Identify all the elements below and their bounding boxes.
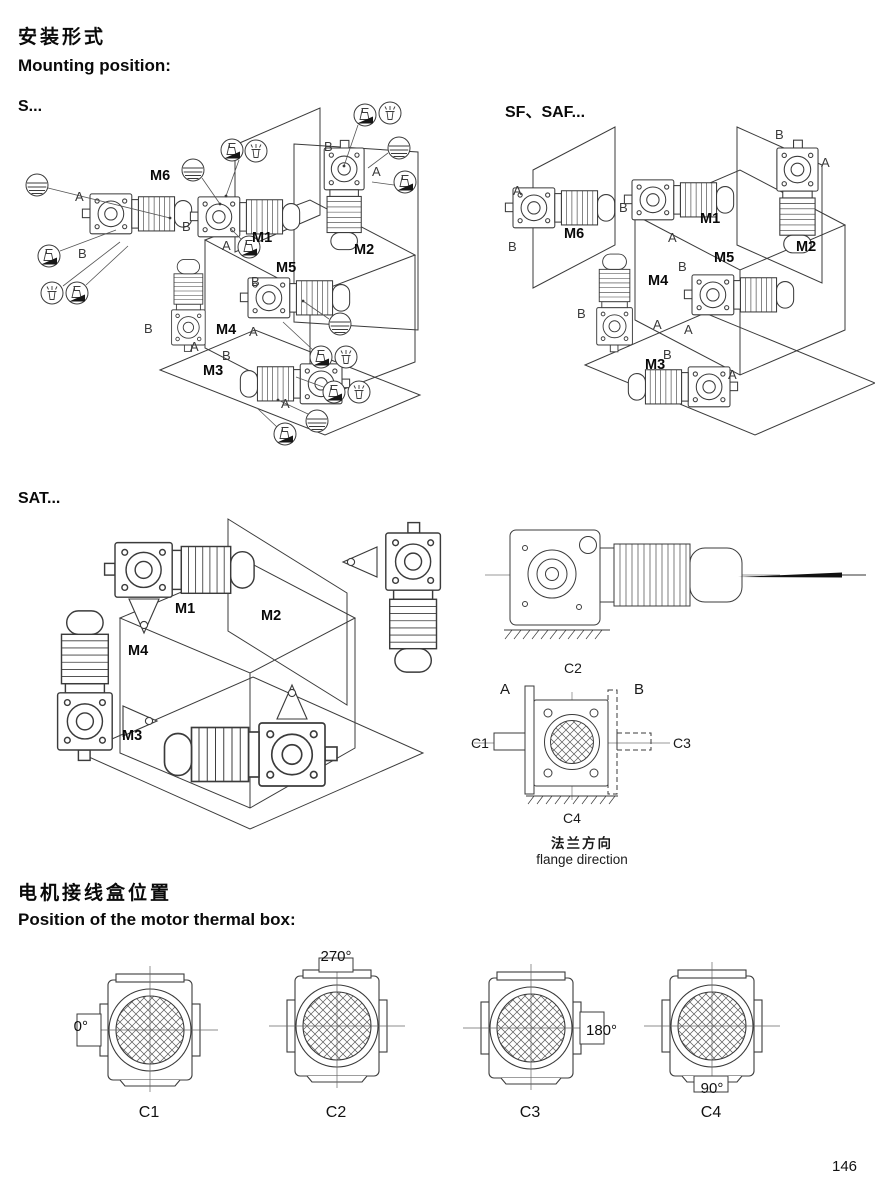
flange-b-label: B (634, 681, 644, 698)
oil-drain-icon (274, 423, 296, 445)
m3-label: M3 (122, 728, 142, 744)
m2-label: M2 (354, 242, 374, 258)
side-a-label: A (75, 189, 84, 204)
breather-icon (379, 102, 401, 124)
side-a-label: A (281, 396, 290, 411)
sf-saf-mounting-diagram: M6 M1 M2 M4 M5 M3 A B B A B A B A B A B … (480, 115, 875, 455)
side-a-label: A (728, 367, 737, 382)
side-b-label: B (251, 274, 260, 289)
angle-270: 270° (296, 948, 376, 965)
side-a-label: A (513, 183, 522, 198)
motor-front (82, 966, 218, 1092)
caption-c2: C2 (261, 1104, 411, 1122)
motor-front (644, 962, 780, 1088)
s-mounting-diagram: M6 M1 M2 M5 M4 M3 A B B A B A B A B A B … (20, 100, 460, 472)
m4-label: M4 (128, 643, 148, 659)
flange-a-label: A (500, 681, 510, 698)
m6-label: M6 (564, 226, 584, 242)
motor-front-view-c1 (74, 960, 224, 1098)
angle-0: 0° (52, 1018, 88, 1035)
m1-label: M1 (175, 601, 195, 617)
oil-drain-icon (38, 245, 60, 267)
gearmotor-m6 (505, 188, 614, 228)
gear-unit-housing (510, 530, 600, 625)
gearmotor-m2 (324, 140, 364, 249)
side-b-label: B (577, 306, 586, 321)
gearmotor-m1 (105, 543, 255, 598)
side-b-label: B (222, 348, 231, 363)
motor-front (269, 962, 405, 1088)
breather-icon (245, 140, 267, 162)
oil-level-icon (388, 137, 410, 159)
side-a-label: A (222, 238, 231, 253)
oil-level-icon (306, 410, 328, 432)
gearmotor-side-view (480, 512, 875, 642)
sat-mounting-diagram: M1 M2 M4 M3 (25, 505, 470, 820)
breather-icon (348, 381, 370, 403)
wall-plane (228, 519, 347, 705)
angle-90: 90° (672, 1080, 752, 1097)
side-a-label: A (249, 324, 258, 339)
side-b-label: B (508, 239, 517, 254)
flange-c4-label: C4 (563, 810, 581, 826)
page-number: 146 (832, 1158, 857, 1175)
side-a-label: A (190, 339, 199, 354)
flange-caption-en: flange direction (462, 852, 702, 867)
m2-label: M2 (261, 608, 281, 624)
side-b-label: B (78, 246, 87, 261)
flange-c2-label: C2 (564, 660, 582, 676)
alternate-flange-dashed (608, 690, 651, 794)
gearmotor-m4 (172, 259, 206, 351)
oil-drain-icon (221, 139, 243, 161)
gearmotor-m4 (597, 254, 633, 352)
thermal-box-title-en: Position of the motor thermal box: (18, 910, 296, 930)
oil-drain-icon (66, 282, 88, 304)
ground-hatching (504, 630, 610, 639)
m4-label: M4 (648, 273, 668, 289)
side-b-label: B (775, 127, 784, 142)
side-a-label: A (668, 230, 677, 245)
gearmotor-m3 (165, 723, 338, 786)
m5-label: M5 (714, 250, 734, 266)
m4-label: M4 (216, 322, 236, 338)
gearmotor-m2 (777, 140, 818, 253)
oil-drain-icon (394, 171, 416, 193)
gearmotor-m6 (82, 194, 191, 234)
side-b-label: B (324, 139, 333, 154)
side-a-label: A (821, 155, 830, 170)
page-title-en: Mounting position: (18, 56, 171, 76)
oil-drain-icon (310, 346, 332, 368)
gearmotor-m2 (386, 523, 441, 673)
torque-arm (129, 599, 159, 633)
flange-direction-diagram: C2 A B C1 C3 C4 (462, 650, 702, 835)
m3-label: M3 (203, 363, 223, 379)
oil-level-icon (182, 159, 204, 181)
oil-drain-icon (354, 104, 376, 126)
motor-front-view-c2 (261, 956, 411, 1094)
side-b-label: B (619, 200, 628, 215)
catalog-page: 安装形式 Mounting position: S... SF、SAF... S… (0, 0, 875, 1191)
gearmotor-m4 (58, 611, 113, 761)
gear-unit-front (494, 686, 608, 794)
side-b-label: B (182, 219, 191, 234)
motor-front (463, 964, 599, 1090)
side-a-label: A (372, 164, 381, 179)
caption-c4: C4 (636, 1104, 786, 1122)
m2-label: M2 (796, 239, 816, 255)
side-a-label: A (653, 317, 662, 332)
flange-caption-zh: 法兰方向 (462, 832, 702, 852)
motor-front-view-c4 (636, 956, 786, 1094)
gearmotor-m5 (684, 275, 793, 315)
m5-label: M5 (276, 260, 296, 276)
page-title-zh: 安装形式 (18, 22, 106, 49)
breather-icon (335, 346, 357, 368)
m1-label: M1 (700, 211, 720, 227)
side-a-label: A (684, 322, 693, 337)
torque-arm (343, 547, 377, 577)
side-b-label: B (678, 259, 687, 274)
oil-level-icon (329, 313, 351, 335)
m1-label: M1 (252, 230, 272, 246)
oil-drain-icon (323, 381, 345, 403)
caption-c1: C1 (74, 1104, 224, 1122)
oil-level-icon (26, 174, 48, 196)
motor-front-view-c3 (455, 958, 605, 1096)
motor-body (600, 544, 742, 606)
caption-c3: C3 (455, 1104, 605, 1122)
m6-label: M6 (150, 168, 170, 184)
thermal-box-title-zh: 电机接线盒位置 (18, 878, 172, 905)
side-b-label: B (663, 347, 672, 362)
flange-c1-label: C1 (471, 735, 489, 751)
breather-icon (41, 282, 63, 304)
flange-c3-label: C3 (673, 735, 691, 751)
side-b-label: B (144, 321, 153, 336)
